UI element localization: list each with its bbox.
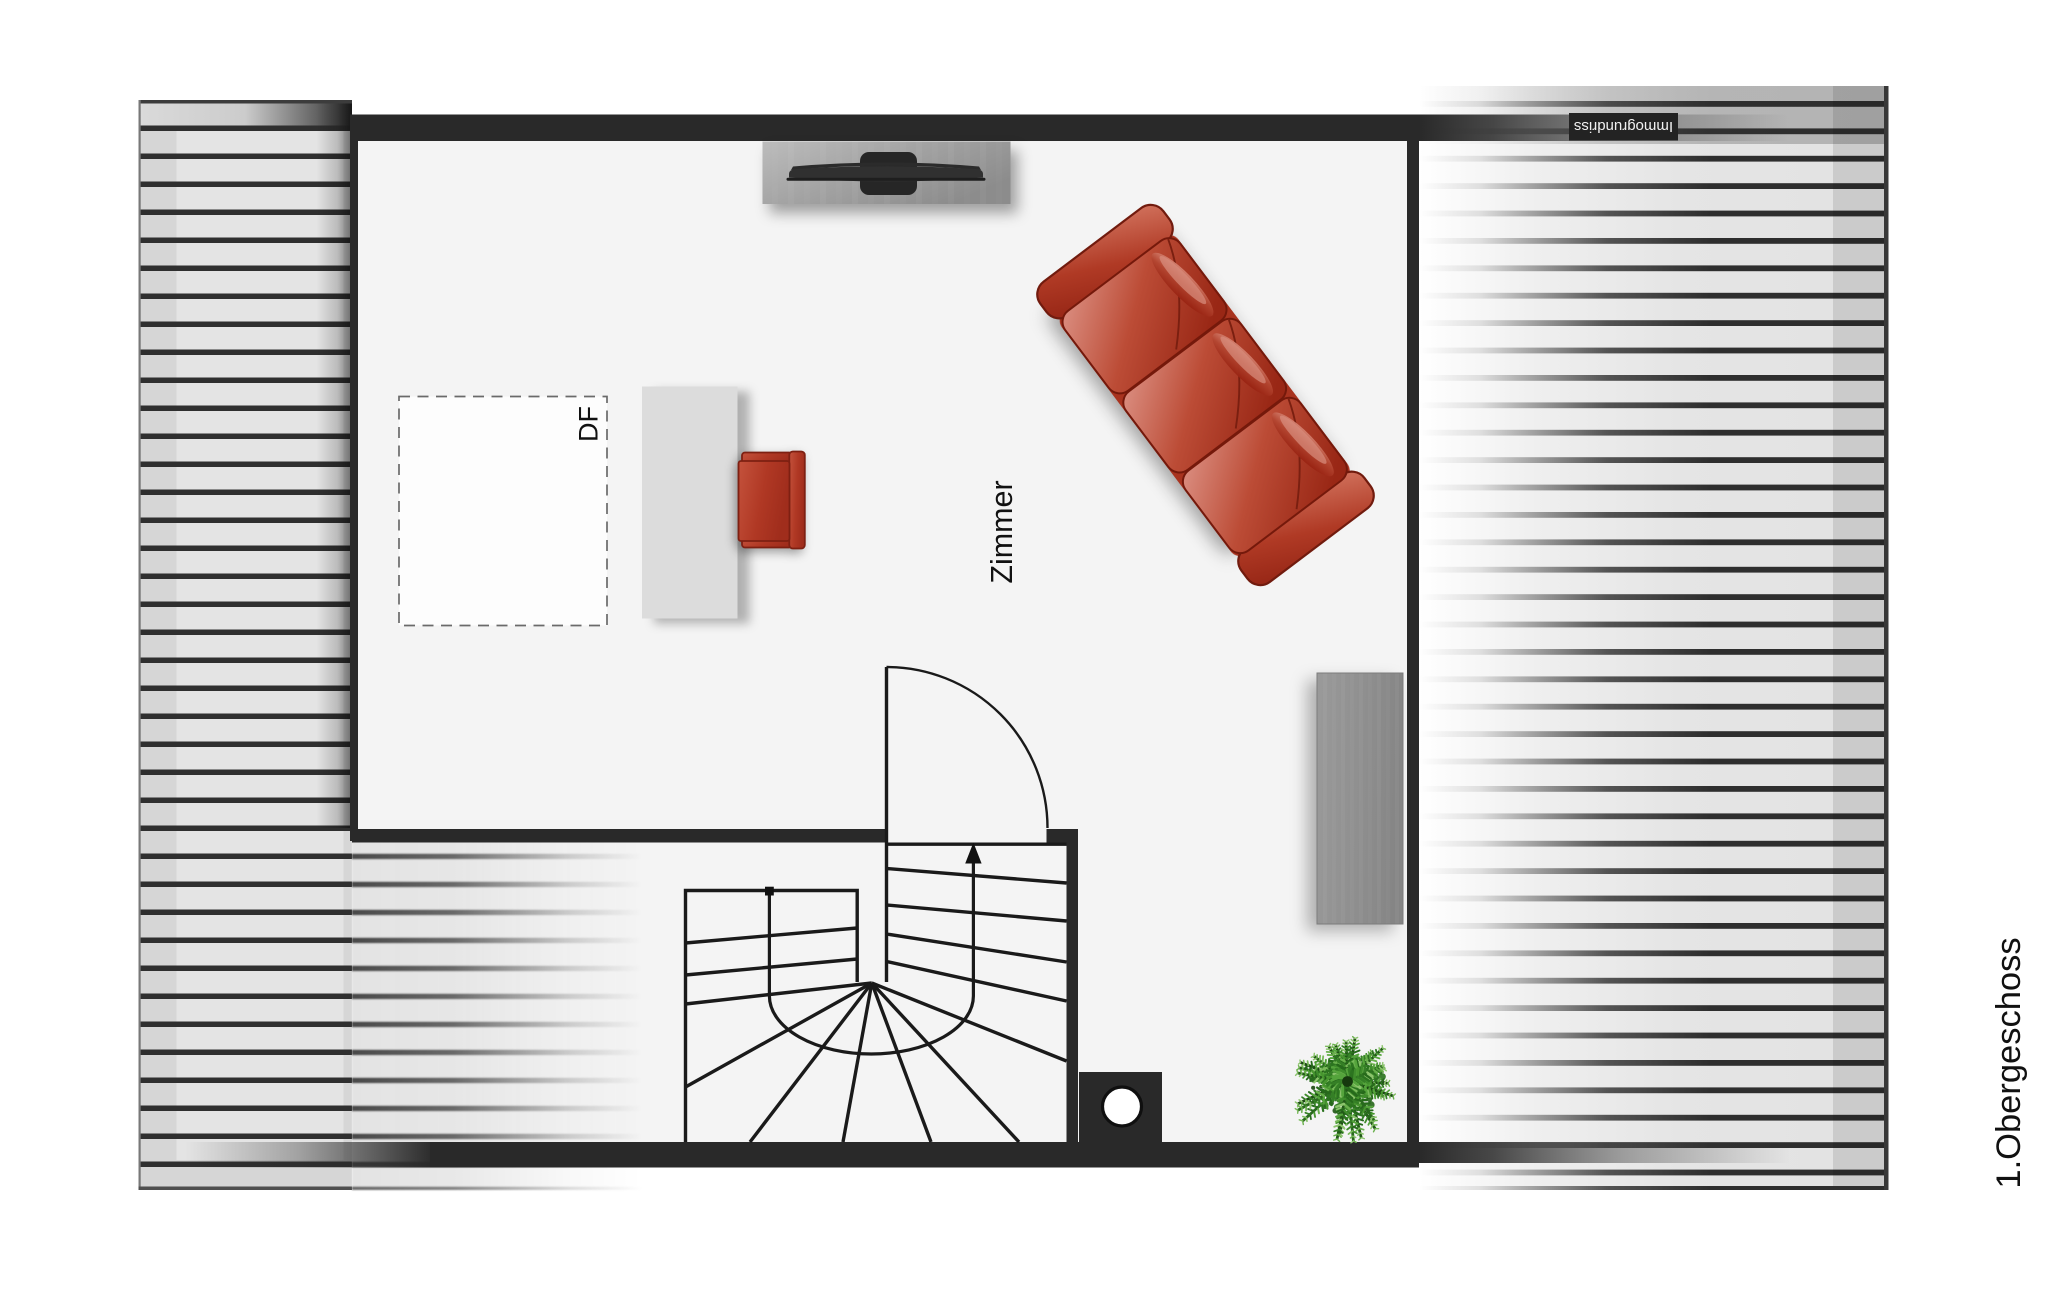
svg-text:Zimmer: Zimmer bbox=[985, 480, 1019, 583]
svg-text:DF: DF bbox=[574, 406, 604, 442]
svg-text:Immogrundriss: Immogrundriss bbox=[1574, 118, 1673, 135]
svg-text:1.Obergeschoss: 1.Obergeschoss bbox=[1990, 937, 2028, 1188]
